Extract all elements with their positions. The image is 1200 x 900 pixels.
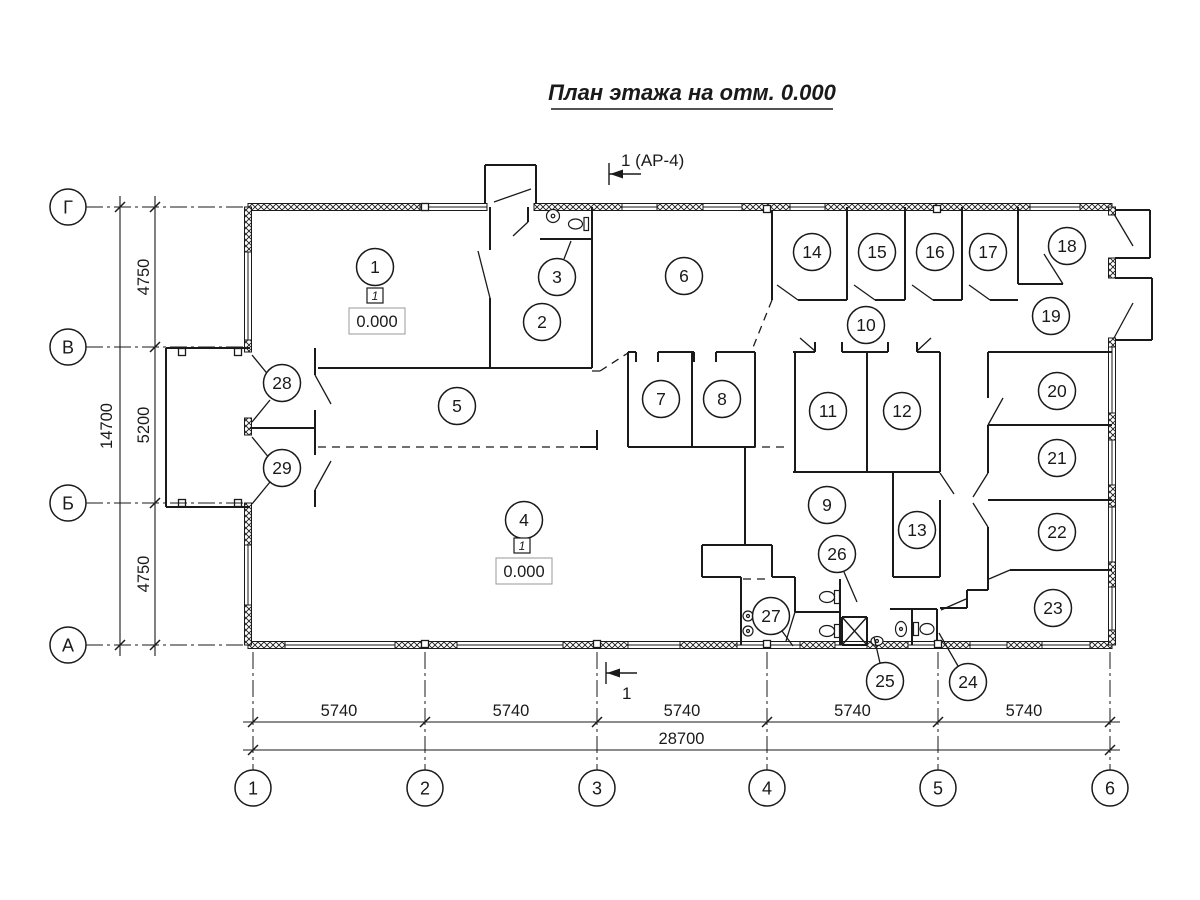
room-number: 16 [925, 242, 944, 262]
sink-icon [547, 210, 560, 223]
axis-label: 4 [762, 779, 772, 799]
room-number: 3 [552, 267, 562, 287]
room-number: 19 [1041, 306, 1060, 326]
axis-label: А [62, 636, 74, 656]
axis-label: 5 [933, 779, 943, 799]
dimension-value: 4750 [135, 556, 153, 593]
drawing-sheet: План этажа на отм. 0.000 1 (АР-4) 1 [0, 0, 1200, 900]
dimension-value: 5740 [1006, 702, 1043, 720]
room-number: 20 [1047, 381, 1067, 401]
axis-label: Б [62, 494, 74, 514]
toilet-icon [820, 591, 840, 604]
sink-icon [743, 611, 753, 621]
drawing-title: План этажа на отм. 0.000 [548, 80, 837, 109]
room-number: 27 [761, 606, 780, 626]
section-label-top: 1 (АР-4) [621, 151, 684, 170]
dimension-value: 5740 [321, 702, 358, 720]
dimension-value: 5740 [834, 702, 871, 720]
elevation-value: 0.000 [503, 563, 544, 581]
axis-label: В [62, 338, 74, 358]
room-number: 7 [656, 389, 666, 409]
axis-label: 6 [1105, 779, 1115, 799]
floor-type-label: 1 [372, 289, 379, 303]
toilet-icon [569, 218, 589, 231]
section-arrow-icon [607, 669, 620, 678]
dimension-value: 5740 [664, 702, 701, 720]
axis-grid: ГВБА123456 [50, 189, 1128, 806]
elevation-value: 0.000 [356, 313, 397, 331]
room-number: 11 [819, 401, 837, 421]
room-number: 14 [802, 242, 822, 262]
dimension-value: 5200 [135, 407, 153, 444]
room-number: 25 [875, 671, 894, 691]
room-number: 28 [272, 373, 291, 393]
section-mark-bottom: 1 [606, 662, 637, 703]
room-number: 10 [856, 315, 876, 335]
toilet-icon [820, 625, 840, 638]
section-arrow-icon [610, 170, 623, 179]
shaft-cross [842, 617, 867, 645]
dimension-total: 14700 [98, 403, 116, 449]
sink-icon [896, 622, 907, 637]
sink-icon [871, 637, 883, 646]
dimension-value: 4750 [135, 259, 153, 296]
room-number: 13 [907, 520, 926, 540]
dashed-openings [318, 300, 788, 579]
sink-icon [743, 626, 753, 636]
room-number: 4 [519, 510, 529, 530]
room-number: 1 [370, 257, 380, 277]
dimension-total: 28700 [659, 730, 705, 748]
room-number: 22 [1047, 522, 1066, 542]
room-number: 21 [1047, 448, 1066, 468]
section-label-bottom: 1 [622, 684, 631, 703]
room-number: 8 [717, 389, 727, 409]
floor-plan-svg: План этажа на отм. 0.000 1 (АР-4) 1 [0, 0, 1200, 900]
room-number: 23 [1043, 598, 1062, 618]
room-number: 9 [822, 495, 832, 515]
room-number: 18 [1057, 236, 1076, 256]
room-number: 29 [272, 458, 291, 478]
room-number: 2 [537, 312, 547, 332]
room-number: 6 [679, 266, 689, 286]
room-number: 26 [827, 544, 846, 564]
elevation-marks: 0.00010.0001 [349, 288, 552, 584]
dimension-value: 5740 [493, 702, 530, 720]
axis-label: Г [63, 198, 73, 218]
floor-type-label: 1 [519, 539, 526, 553]
page-title: План этажа на отм. 0.000 [548, 80, 837, 105]
axis-label: 1 [248, 779, 258, 799]
toilet-icon [914, 623, 935, 636]
room-number: 24 [958, 672, 978, 692]
axis-label: 2 [420, 779, 430, 799]
room-number: 17 [978, 242, 997, 262]
axis-label: 3 [592, 779, 602, 799]
room-number: 15 [867, 242, 886, 262]
room-number: 12 [892, 401, 911, 421]
room-number: 5 [452, 396, 462, 416]
section-mark-top: 1 (АР-4) [609, 151, 684, 185]
